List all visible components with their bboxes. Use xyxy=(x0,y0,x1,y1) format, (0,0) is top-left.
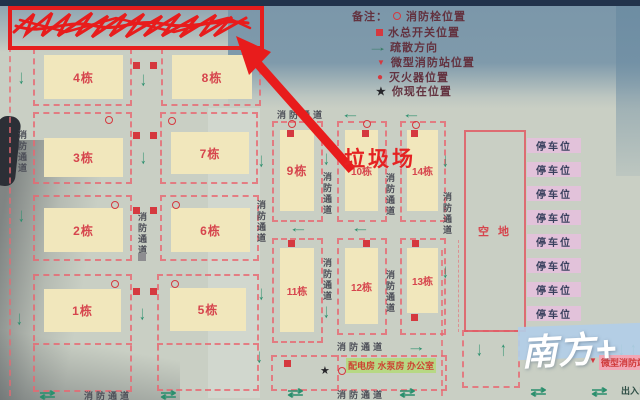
evacuation-arrow-icon: ↓ xyxy=(18,205,25,225)
building-label: 6栋 xyxy=(200,222,221,239)
water-valve-marker-icon xyxy=(412,240,419,247)
building-label: 12栋 xyxy=(351,279,372,294)
evacuation-arrow-icon: ↓ xyxy=(258,150,265,170)
legend-item: ▼ 微型消防站位置 xyxy=(377,54,475,70)
hydrant-marker-icon xyxy=(111,280,119,288)
plot-divider xyxy=(33,343,132,345)
hydrant-marker-icon xyxy=(171,280,179,288)
redaction-scribble xyxy=(8,6,256,42)
building: 4栋 xyxy=(44,55,123,99)
evacuation-arrow-icon: ↓ xyxy=(256,346,263,366)
mini-station-triangle-icon: ▼ xyxy=(377,58,386,67)
parking-space-label: 停车位 xyxy=(527,258,581,273)
site-plan-photo: 4栋 8栋 3栋 7栋 2栋 6栋 1栋 5栋 9栋 10栋 14栋 11栋 1… xyxy=(0,0,640,400)
legend-prefix: 备注： xyxy=(352,8,388,24)
parking-space-label: 停车位 xyxy=(527,138,581,153)
building-label: 1栋 xyxy=(72,302,93,319)
building-label: 4栋 xyxy=(73,69,94,86)
building-label: 2栋 xyxy=(73,222,94,239)
garbage-site-label: 垃圾场 xyxy=(344,143,416,173)
facilities-label: 配电房 水泵房 办公室 xyxy=(346,358,436,373)
water-valve-marker-icon xyxy=(150,132,157,139)
evacuation-arrow-icon: ← xyxy=(341,107,361,120)
evacuation-arrow-icon: ⇄ xyxy=(287,386,303,399)
parking-space-label: 停车位 xyxy=(527,306,581,321)
building-label: 13栋 xyxy=(412,273,433,288)
evacuation-arrow-icon: ↓ xyxy=(442,150,449,170)
evacuation-arrow-icon: → xyxy=(407,340,427,353)
building: 7栋 xyxy=(171,132,249,174)
building: 3栋 xyxy=(44,138,123,177)
building: 8栋 xyxy=(172,55,252,99)
evacuation-arrow-icon: ↓ xyxy=(140,147,147,167)
building-label: 5栋 xyxy=(198,301,219,318)
building-plot: 3栋 xyxy=(33,112,132,184)
building: 6栋 xyxy=(171,208,250,252)
building: 11栋 xyxy=(280,248,314,332)
parking-space-label: 停车位 xyxy=(527,186,581,201)
legend-item: 水总开关位置 xyxy=(376,24,460,40)
parking-space-label: 停车位 xyxy=(527,162,581,177)
building: 12栋 xyxy=(345,248,378,324)
map-line-right xyxy=(458,240,459,332)
hydrant-marker-icon xyxy=(412,121,420,129)
water-valve-marker-icon xyxy=(133,132,140,139)
building-plot: 1栋 xyxy=(33,274,132,392)
fire-lane-label: 消防通道 xyxy=(321,172,334,216)
empty-lot: 空 地 xyxy=(464,130,526,332)
building-plot: 12栋 xyxy=(337,238,387,335)
building-plot: 8栋 xyxy=(161,48,261,106)
building-label: 7栋 xyxy=(200,145,221,162)
water-valve-square-icon xyxy=(376,29,383,36)
building-label: 3栋 xyxy=(73,149,94,166)
water-valve-marker-icon xyxy=(150,207,157,214)
building-label: 11栋 xyxy=(287,283,308,298)
evacuation-arrow-icon: ↓ xyxy=(442,261,449,281)
hydrant-marker-icon xyxy=(168,117,176,125)
parking-space-label: 停车位 xyxy=(527,234,581,249)
building: 5栋 xyxy=(170,288,246,331)
bottom-right-lot xyxy=(462,330,520,388)
water-valve-marker-icon xyxy=(284,360,291,367)
water-valve-marker-icon xyxy=(133,207,140,214)
gray-marker xyxy=(138,253,146,261)
legend-item: 备注： 消防栓位置 xyxy=(352,8,466,24)
building-plot: 4栋 xyxy=(33,48,132,106)
water-valve-marker-icon xyxy=(363,240,370,247)
building-plot: 9栋 xyxy=(272,121,323,222)
building-label: 9栋 xyxy=(287,162,308,179)
evacuation-arrow-icon: ↓ xyxy=(16,308,23,328)
building-plot: 11栋 xyxy=(272,238,323,343)
fire-lane-label: 消防通道 xyxy=(384,270,397,314)
evacuation-arrow-icon: → xyxy=(367,40,389,54)
you-are-here-star-icon: ★ xyxy=(376,85,387,98)
empty-lot-label: 空 地 xyxy=(478,223,512,239)
evacuation-arrow-icon: ↓ xyxy=(323,148,330,168)
hydrant-marker-icon xyxy=(288,120,296,128)
evacuation-arrow-icon: ↓ xyxy=(323,301,330,321)
watermark-logo: 南方+ xyxy=(520,320,619,377)
water-valve-marker-icon xyxy=(411,314,418,321)
legend-item: ★ 你现在位置 xyxy=(376,83,452,99)
fire-lane-label: 消防通道 xyxy=(84,389,132,400)
fire-lane-label: 消防通道 xyxy=(441,192,454,236)
fire-lane-label: 消防通道 xyxy=(277,108,325,121)
water-valve-marker-icon xyxy=(287,130,294,137)
fire-lane-label: 消防通道 xyxy=(337,388,385,400)
building: 1栋 xyxy=(44,289,121,332)
water-valve-marker-icon xyxy=(362,130,369,137)
water-valve-marker-icon xyxy=(133,62,140,69)
water-valve-marker-icon xyxy=(411,130,418,137)
plot-divider xyxy=(157,343,259,345)
evacuation-arrow-icon: ⇄ xyxy=(399,386,415,399)
legend-item: → 疏散方向 xyxy=(372,39,438,55)
fire-lane-label: 消防通道 xyxy=(321,258,334,302)
water-valve-marker-icon xyxy=(150,288,157,295)
evacuation-arrow-icon: ↓ xyxy=(18,67,25,87)
you-are-here-star-icon: ★ xyxy=(320,364,330,377)
evacuation-arrow-icon: ↓ xyxy=(140,69,147,89)
glass-reflection-right-strip xyxy=(616,6,640,176)
evacuation-arrow-icon: ↓ xyxy=(476,339,483,359)
parking-space-label: 停车位 xyxy=(527,282,581,297)
entrance-exit-label: 出入口 xyxy=(621,384,640,397)
parking-space-label: 停车位 xyxy=(527,210,581,225)
fire-lane-label: 消防通道 xyxy=(255,200,268,244)
hydrant-marker-icon xyxy=(363,120,371,128)
fire-lane-label: 消防通道 xyxy=(384,173,397,217)
building: 2栋 xyxy=(44,208,123,252)
building-plot: 13栋 xyxy=(400,238,446,335)
building: 13栋 xyxy=(407,248,438,313)
fire-lane-label: 消防通道 xyxy=(16,130,29,174)
evacuation-arrow-icon: ↓ xyxy=(139,303,146,323)
water-valve-marker-icon xyxy=(288,240,295,247)
evacuation-arrow-icon: ⇄ xyxy=(39,388,55,400)
hydrant-marker-icon xyxy=(338,367,346,375)
water-valve-marker-icon xyxy=(150,62,157,69)
building-plot: 5栋 xyxy=(157,274,259,391)
evacuation-arrow-icon: ← xyxy=(351,221,371,234)
hydrant-circle-icon xyxy=(393,12,401,20)
hydrant-marker-icon xyxy=(111,201,119,209)
evacuation-arrow-icon: ⇄ xyxy=(591,385,607,398)
evacuation-arrow-icon: ← xyxy=(402,107,422,120)
evacuation-arrow-icon: ⇄ xyxy=(160,388,176,400)
evacuation-arrow-icon: ↑ xyxy=(500,339,507,359)
fire-lane-label: 消防通道 xyxy=(136,212,149,256)
extinguisher-dot-icon: ● xyxy=(377,72,384,83)
evacuation-arrow-icon: ⇄ xyxy=(530,385,546,398)
evacuation-arrow-icon: ← xyxy=(289,221,309,234)
water-valve-marker-icon xyxy=(133,288,140,295)
hydrant-marker-icon xyxy=(105,116,113,124)
redaction-box xyxy=(8,6,264,50)
evacuation-arrow-icon: ↓ xyxy=(258,283,265,303)
building: 9栋 xyxy=(280,130,314,211)
map-boundary-left xyxy=(9,46,11,396)
fire-lane-label: 消防通道 xyxy=(337,340,385,353)
hydrant-marker-icon xyxy=(172,201,180,209)
building-label: 8栋 xyxy=(202,69,223,86)
